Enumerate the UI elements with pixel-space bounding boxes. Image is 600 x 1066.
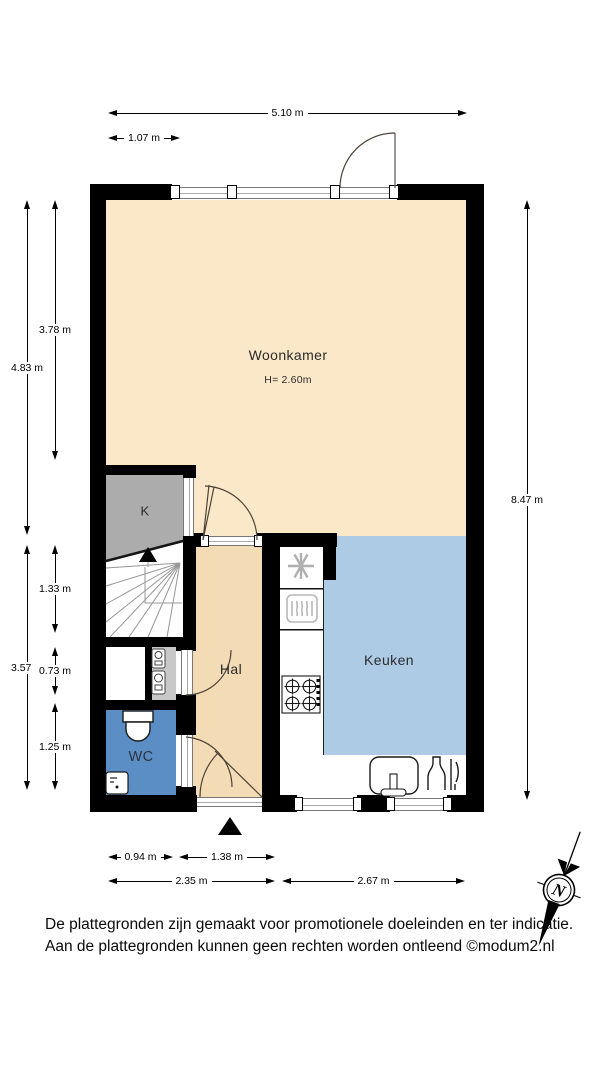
dimension-d-483: 4.83 m [23,200,31,535]
cv-closet-door [181,650,193,695]
window-mullion [170,185,180,199]
window-mullion [386,797,395,811]
wall-wc-hal-upper [176,710,196,735]
wall-under-stairs [90,637,196,647]
dimension-d-357: 3.57 m [23,545,31,790]
dimension-d-125: 1.25 m [51,703,59,790]
entrance-marker [218,817,242,835]
dimension-d-267: 2.67 m [282,877,465,885]
wall-hal-keuken [262,547,280,795]
window-mullion [353,797,362,811]
wall-wc-hal-lower [176,786,196,795]
kast-door [183,478,194,536]
keuken-floor-upper [336,536,466,547]
compass-n-label: N [549,879,569,902]
threshold-end [254,535,263,547]
wall-stairs-hal [183,535,196,637]
footer-line-1: De plattegronden zijn gemaakt voor promo… [45,914,573,936]
keuken-floor [323,547,466,755]
room-label-wc: WC [129,749,154,765]
window-mullion [330,185,340,199]
wall-meterkast-cv [145,647,152,700]
dimension-d-378: 3.78 m [51,200,59,460]
dimension-d-133: 1.33 m [51,545,59,633]
kitchen-counter-column [280,547,324,755]
floorplan-page: N Woonkamer H= 2.60m Keuken Hal WC K 5.1… [0,0,600,1066]
entry-door-arc [340,133,395,188]
wall-counter-stub [323,536,336,580]
wall-kast-top [106,465,190,475]
room-height-note: H= 2.60m [264,374,311,386]
front-door-threshold [197,797,262,807]
wall-kast-door-stub [183,465,196,478]
room-label-hal: Hal [220,661,242,677]
footer-disclaimer: De plattegronden zijn gemaakt voor promo… [45,914,573,958]
window-mullion [227,185,237,199]
hal-doorway-threshold [203,536,258,546]
top-window-glazing [172,187,397,199]
room-label-kast: K [140,504,149,519]
wall-top-left [90,184,172,200]
window-mullion [389,185,399,199]
wc-door [181,735,193,787]
dimension-d-094: 0.94 m [108,853,173,861]
wall-bottom-4 [447,795,484,812]
kitchen-window-2 [390,798,447,811]
dimension-d-138: 1.38 m [179,853,275,861]
wall-wc-top [90,700,196,710]
dimension-d-510: 5.10 m [108,109,467,117]
wall-right [466,184,484,812]
threshold-end [200,535,209,547]
dimension-d-107: 1.07 m [108,134,180,142]
kitchen-window-1 [297,798,357,811]
kitchen-counter-bottom [280,755,466,795]
dimension-d-073: 0.73 m [51,647,59,695]
window-mullion [443,797,452,811]
footer-line-2: Aan de plattegronden kunnen geen rechten… [45,936,573,958]
cv-closet-floor [152,647,176,700]
wall-bottom-1 [90,795,197,812]
stairs-floor [106,473,183,637]
dimension-d-847: 8.47 m [523,200,531,800]
wall-bottom-2 [262,795,297,812]
room-label-woonkamer: Woonkamer [249,347,328,363]
dimension-d-235: 2.35 m [108,877,275,885]
room-label-keuken: Keuken [364,652,414,668]
wall-left [90,184,106,812]
window-mullion [294,797,303,811]
